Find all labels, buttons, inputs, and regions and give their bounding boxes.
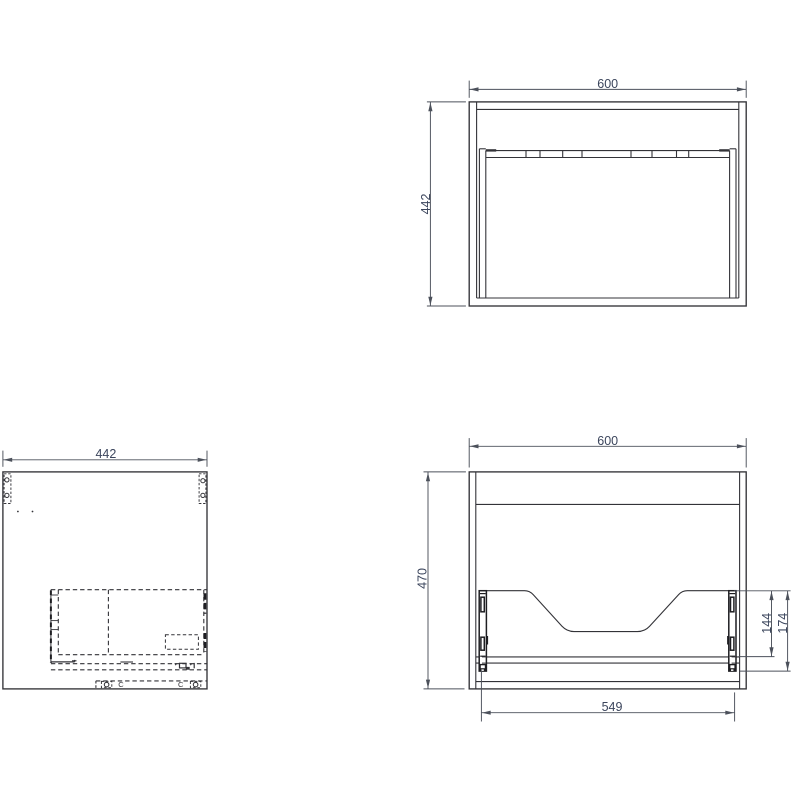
svg-text:470: 470 [416,568,430,589]
svg-text:442: 442 [419,194,433,215]
svg-text:144: 144 [760,613,774,634]
svg-text:549: 549 [602,700,623,714]
svg-text:600: 600 [597,77,618,91]
svg-text:174: 174 [776,613,790,634]
svg-text:442: 442 [95,447,116,461]
svg-text:600: 600 [597,434,618,448]
svg-text:C: C [178,680,184,689]
svg-text:C: C [118,680,124,689]
